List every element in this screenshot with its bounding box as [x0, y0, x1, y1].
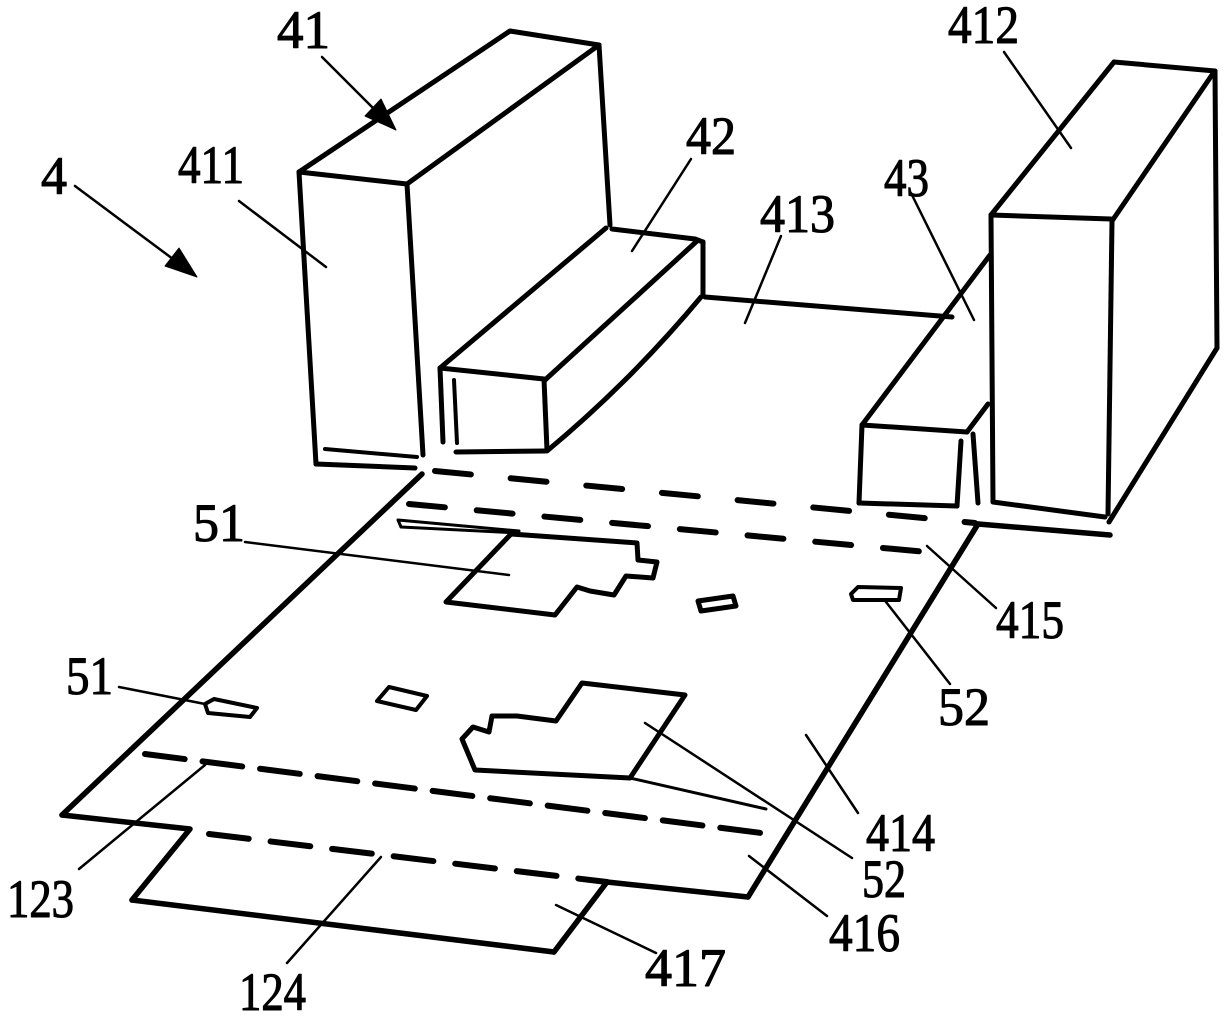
svg-text:4: 4 [41, 146, 67, 206]
svg-text:124: 124 [239, 962, 306, 1016]
svg-text:52: 52 [862, 849, 906, 909]
svg-text:41: 41 [277, 0, 330, 60]
svg-text:43: 43 [884, 148, 929, 208]
svg-text:411: 411 [178, 135, 244, 195]
svg-text:52: 52 [938, 677, 990, 737]
svg-text:416: 416 [829, 903, 900, 963]
svg-text:415: 415 [996, 590, 1064, 650]
svg-text:42: 42 [686, 106, 736, 166]
svg-text:417: 417 [645, 938, 726, 998]
svg-text:412: 412 [948, 0, 1019, 55]
svg-text:413: 413 [760, 184, 835, 244]
svg-text:51: 51 [193, 493, 245, 553]
svg-text:51: 51 [66, 646, 113, 706]
svg-text:123: 123 [7, 869, 74, 929]
